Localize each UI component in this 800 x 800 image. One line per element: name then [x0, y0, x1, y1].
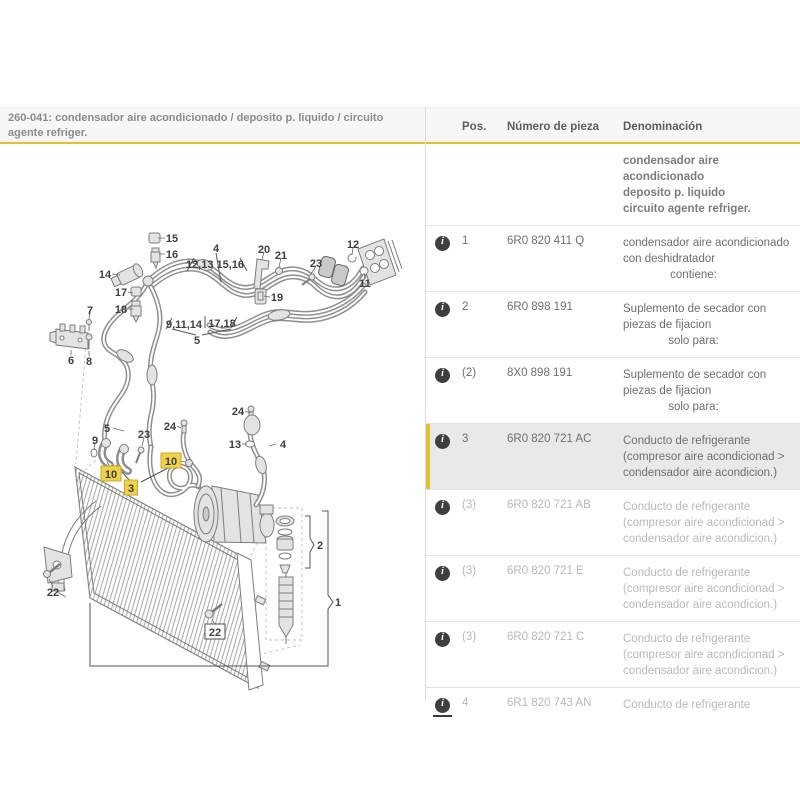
diagram-callout: 18	[115, 304, 127, 316]
pos-cell: (3)	[462, 631, 476, 643]
description-cell: Conducto de refrigerante(compresor aire …	[623, 565, 798, 613]
part-number-cell: 6R0 898 191	[507, 301, 573, 313]
table-row[interactable]: i(3)6R0 820 721 CConducto de refrigerant…	[426, 621, 800, 687]
diagram-callout: 6	[68, 355, 74, 367]
table-body: condensador aire acondicionadodeposito p…	[426, 144, 800, 725]
parts-diagram: 1516412,13 15,1620212312111417187689,11,…	[0, 225, 425, 695]
diagram-callout[interactable]: 3	[128, 483, 134, 495]
diagram-callout: 1	[335, 597, 341, 609]
diagram-callout: 24	[232, 406, 245, 418]
receiver-drier	[276, 516, 294, 644]
diagram-callout: 12,13 15,16	[186, 259, 244, 271]
description-cell: Suplemento de secador conpiezas de fijac…	[623, 367, 798, 415]
info-icon[interactable]: i	[435, 698, 450, 713]
diagram-callout: 2	[317, 540, 323, 552]
table-row[interactable]: i26R0 898 191Suplemento de secador conpi…	[426, 291, 800, 357]
diagram-callout: 17	[115, 287, 127, 299]
description-cell: condensador aire acondicionadocon deshid…	[623, 235, 798, 283]
part-number-cell: 6R0 820 721 AB	[507, 499, 591, 511]
part-number-cell: 6R1 820 743 AN	[507, 697, 591, 709]
diagram-callout: 12	[347, 239, 359, 251]
info-icon[interactable]: i	[435, 434, 450, 449]
diagram-callout: 5	[104, 423, 110, 435]
info-icon[interactable]: i	[435, 236, 450, 251]
diagram-callout: 16	[166, 249, 178, 261]
table-row[interactable]: i36R0 820 721 ACConducto de refrigerante…	[426, 423, 800, 489]
info-icon[interactable]: i	[435, 302, 450, 317]
diagram-callout: 13	[229, 439, 241, 451]
description-cell: Suplemento de secador conpiezas de fijac…	[623, 301, 798, 349]
diagram-callout: 20	[258, 244, 270, 256]
column-pos: Pos.	[462, 121, 486, 133]
diagram-callout: 23	[138, 429, 150, 441]
diagram-callout: 9	[92, 435, 98, 447]
diagram-callout: 14	[99, 269, 112, 281]
info-icon[interactable]: i	[435, 500, 450, 515]
pos-cell: 4	[462, 697, 468, 709]
pos-cell: 2	[462, 301, 468, 313]
part-number-cell: 6R0 820 721 E	[507, 565, 584, 577]
diagram-callout: 23	[310, 258, 322, 270]
parts-table: Pos. Número de pieza Denominación conden…	[426, 107, 800, 725]
table-row[interactable]: i16R0 820 411 Qcondensador aire acondici…	[426, 225, 800, 291]
pos-cell: (2)	[462, 367, 476, 379]
diagram-callout: 19	[271, 292, 283, 304]
diagram-callout: 22	[209, 627, 221, 639]
table-row[interactable]: i46R1 820 743 ANConducto de refrigerante	[426, 687, 800, 725]
diagram-callout[interactable]: 10	[105, 469, 117, 481]
description-cell: Conducto de refrigerante(compresor aire …	[623, 631, 798, 679]
diagram-callout: 15	[166, 233, 178, 245]
pos-cell: (3)	[462, 565, 476, 577]
diagram-callout: 21	[275, 250, 287, 262]
section-title: 260-041: condensador aire acondicionado …	[0, 107, 425, 144]
info-icon[interactable]: i	[435, 368, 450, 383]
hoses	[104, 258, 365, 505]
pos-cell: 3	[462, 433, 468, 445]
table-row[interactable]: condensador aire acondicionadodeposito p…	[426, 144, 800, 225]
part-number-cell: 6R0 820 721 AC	[507, 433, 591, 445]
pos-cell: 1	[462, 235, 468, 247]
description-cell: condensador aire acondicionadodeposito p…	[623, 153, 798, 217]
diagram-callout[interactable]: 10	[165, 456, 177, 468]
info-icon[interactable]: i	[435, 632, 450, 647]
diagram-callout: 9,11,14	[166, 319, 203, 331]
part-number-cell: 6R0 820 411 Q	[507, 235, 584, 247]
diagram-callout: 4	[213, 243, 220, 255]
part-number-cell: 6R0 820 721 C	[507, 631, 584, 643]
diagram-callout: 4	[280, 439, 287, 451]
column-denomination: Denominación	[623, 121, 702, 133]
description-cell: Conducto de refrigerante	[623, 697, 798, 713]
diagram-callout: 17,18	[208, 318, 236, 330]
part-number-cell: 8X0 898 191	[507, 367, 572, 379]
description-cell: Conducto de refrigerante(compresor aire …	[623, 433, 798, 481]
table-row[interactable]: i(2)8X0 898 191Suplemento de secador con…	[426, 357, 800, 423]
table-row[interactable]: i(3)6R0 820 721 EConducto de refrigerant…	[426, 555, 800, 621]
table-row[interactable]: i(3)6R0 820 721 ABConducto de refrigeran…	[426, 489, 800, 555]
description-cell: Conducto de refrigerante(compresor aire …	[623, 499, 798, 547]
diagram-callout: 7	[87, 305, 93, 317]
diagram-callout: 11	[359, 278, 371, 290]
table-header: Pos. Número de pieza Denominación	[426, 107, 800, 144]
info-icon[interactable]: i	[435, 566, 450, 581]
diagram-callout: 5	[194, 335, 200, 347]
diagram-callout: 24	[164, 421, 177, 433]
pos-cell: (3)	[462, 499, 476, 511]
diagram-callout: 8	[86, 356, 92, 368]
diagram-callout: 22	[47, 587, 59, 599]
column-part-number: Número de pieza	[507, 121, 599, 133]
